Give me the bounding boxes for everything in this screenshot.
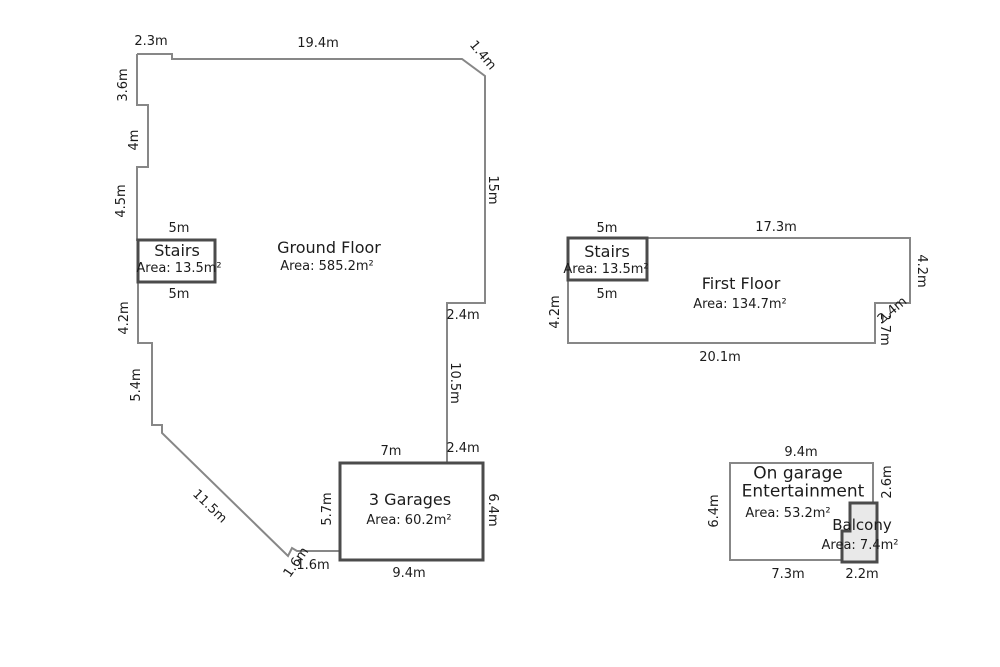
garage-dim-top: 7m [381,445,402,459]
gf-dim-left-4: 4.2m [118,301,132,334]
ff-dim-right: 4.2m [914,254,928,287]
ff-stairs-title: Stairs [584,243,630,261]
balcony-title: Balcony [832,517,891,534]
garage-box [340,463,483,560]
ent-area: Area: 53.2m² [745,507,830,521]
garage-title: 3 Garages [369,491,451,509]
gf-dim-top: 19.4m [297,37,339,51]
gf-area: Area: 585.2m² [280,260,374,274]
gf-dim-right-2: 10.5m [447,362,461,404]
gf-dim-left-5: 5.4m [130,368,144,401]
ent-title-line2: Entertainment [742,483,865,502]
gf-dim-left-1: 3.6m [117,68,131,101]
ff-stairs-dim-bottom: 5m [597,288,618,302]
ground-floor-outline-bottom-left [138,282,341,556]
ff-area: Area: 134.7m² [693,298,787,312]
garage-area: Area: 60.2m² [366,514,451,528]
gf-stairs-dim-top: 5m [169,222,190,236]
balcony-area: Area: 7.4m² [822,539,899,553]
gf-stairs-title: Stairs [154,242,200,260]
gf-dim-right-bottom-step: 2.4m [446,442,479,456]
ff-title: First Floor [702,275,781,293]
ff-dim-top: 17.3m [755,221,797,235]
ff-stairs-area: Area: 13.5m² [563,263,648,277]
gf-dim-top-left: 2.3m [134,35,167,49]
gf-dim-left-2: 4m [128,130,142,151]
gf-stairs-dim-bottom: 5m [169,288,190,302]
garage-dim-left: 5.7m [321,492,335,525]
garage-dim-right: 6.4m [485,493,499,526]
ent-dim-top: 9.4m [784,446,817,460]
ff-stairs-dim-top: 5m [597,222,618,236]
ff-dim-notch-v: 2.7m [877,312,891,345]
ent-dim-bottom-left: 7.3m [771,568,804,582]
ff-dim-left: 4.2m [549,295,563,328]
ent-dim-bottom-right: 2.2m [845,568,878,582]
gf-stairs-area: Area: 13.5m² [136,262,221,276]
ent-title-line1: On garage [753,465,842,484]
ff-dim-bottom: 20.1m [699,351,741,365]
ent-dim-left: 6.4m [708,494,722,527]
gf-dim-right-step: 2.4m [446,309,479,323]
floorplan-canvas: 2.3m 19.4m 1.4m 3.6m 4m 4.5m 5m Stairs A… [0,0,1000,667]
gf-dim-left-3: 4.5m [115,184,129,217]
gf-dim-right-1: 15m [485,175,499,204]
ent-dim-right: 2.6m [881,465,895,498]
garage-dim-bottom: 9.4m [392,567,425,581]
gf-title: Ground Floor [277,239,381,257]
